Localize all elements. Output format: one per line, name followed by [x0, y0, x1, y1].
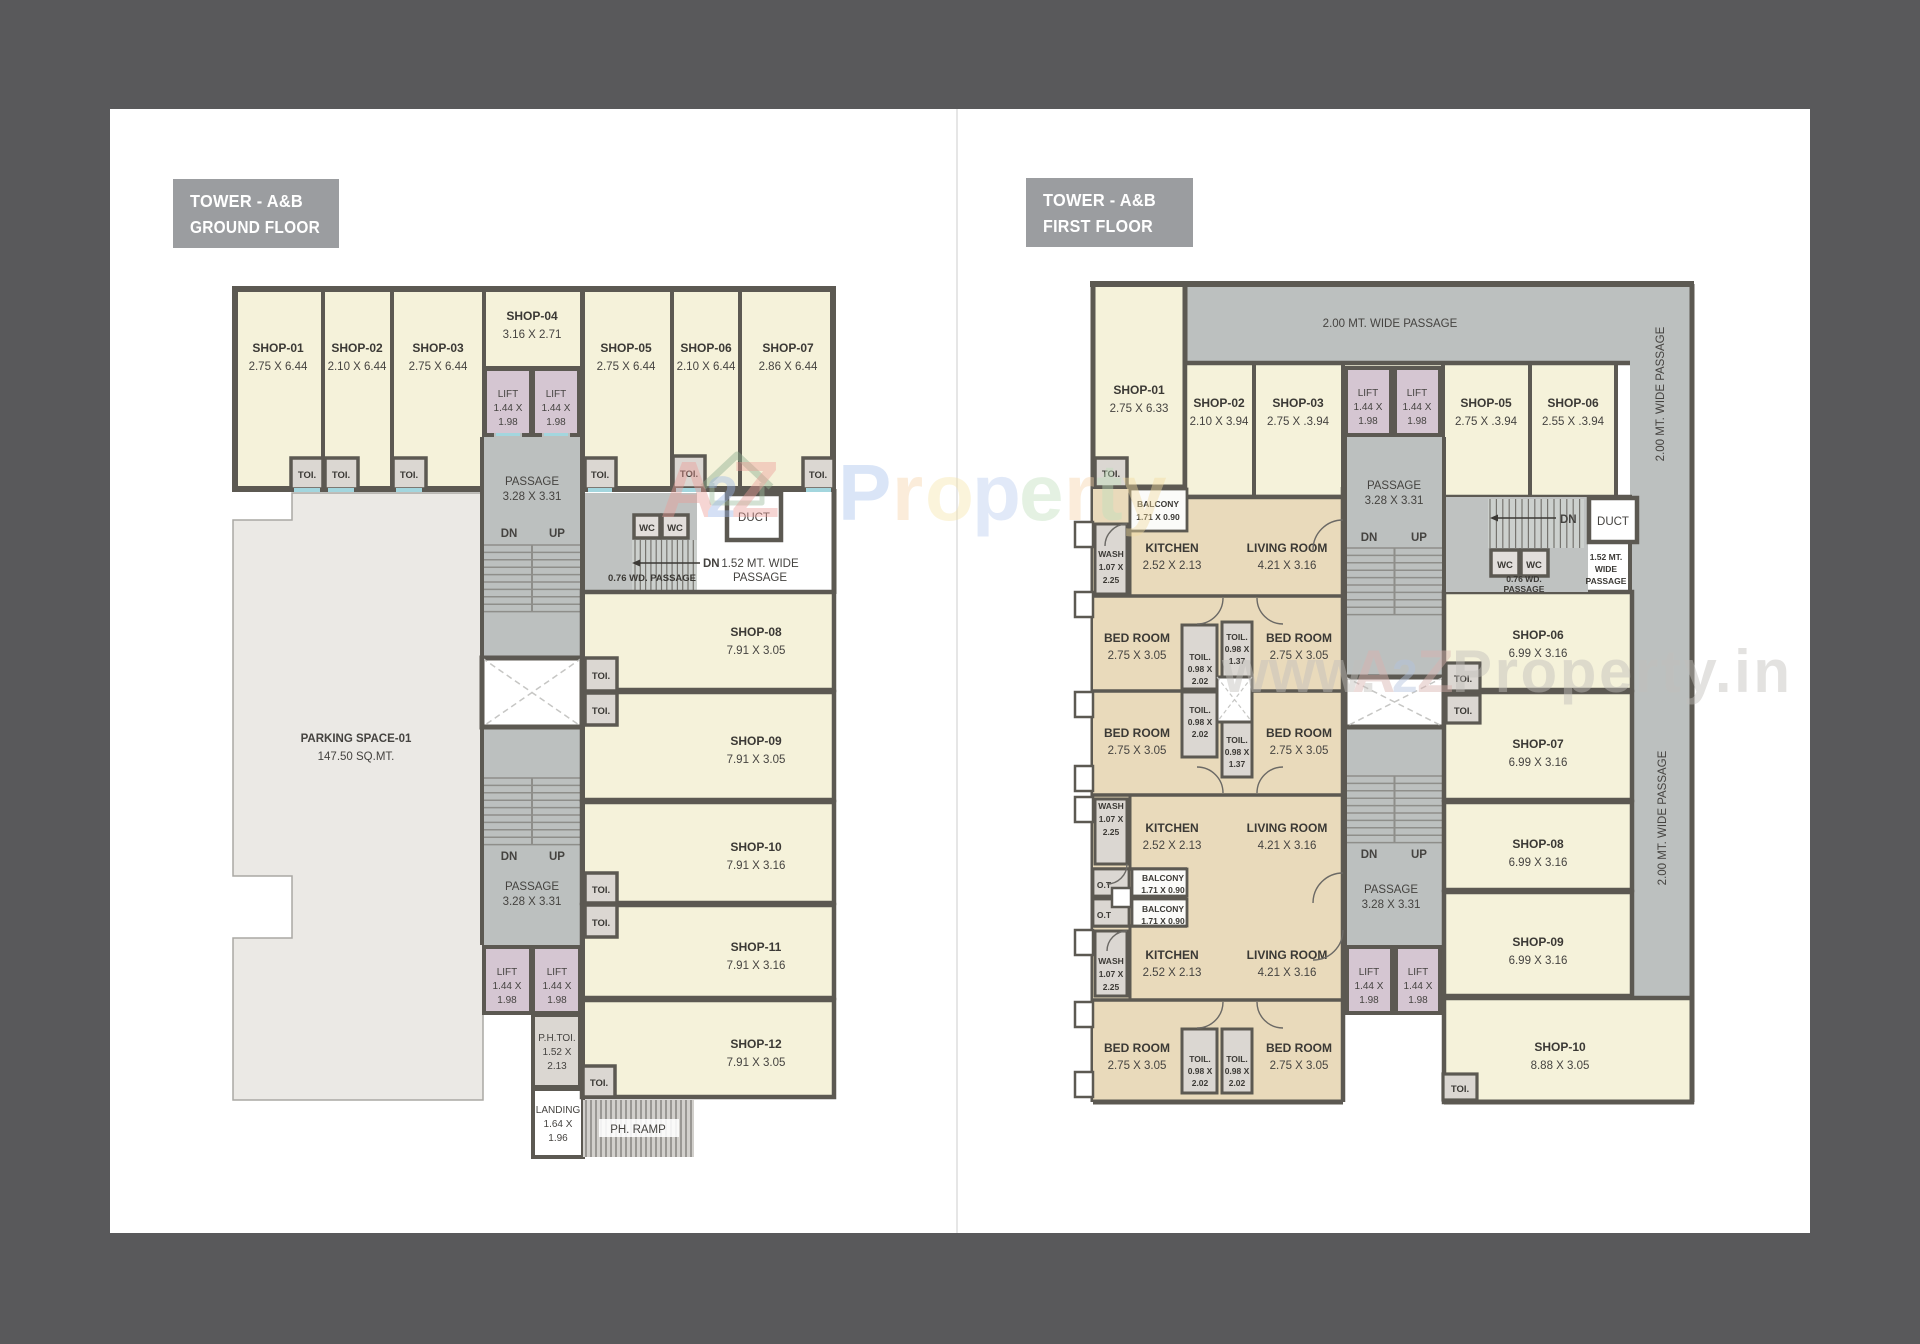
svg-text:2.13: 2.13	[547, 1061, 567, 1072]
svg-text:0.98 X: 0.98 X	[1188, 717, 1213, 727]
svg-text:p: p	[972, 448, 1021, 537]
svg-text:3.28 X 3.31: 3.28 X 3.31	[1365, 495, 1424, 507]
svg-text:LIFT: LIFT	[547, 967, 568, 978]
svg-text:1.98: 1.98	[1408, 995, 1428, 1006]
svg-text:TOI.: TOI.	[1451, 1084, 1469, 1095]
svg-text:8.88 X 3.05: 8.88 X 3.05	[1531, 1060, 1590, 1072]
svg-text:SHOP-07: SHOP-07	[1512, 737, 1564, 751]
svg-text:KITCHEN: KITCHEN	[1145, 541, 1198, 555]
svg-text:2.02: 2.02	[1229, 1078, 1246, 1088]
svg-text:1.44 X: 1.44 X	[543, 981, 572, 992]
svg-text:2.25: 2.25	[1103, 575, 1120, 585]
svg-text:UP: UP	[549, 851, 565, 863]
svg-text:1.44 X: 1.44 X	[1354, 402, 1383, 413]
svg-text:2.25: 2.25	[1103, 982, 1120, 992]
svg-text:PASSAGE: PASSAGE	[1364, 884, 1418, 896]
svg-text:2.02: 2.02	[1192, 676, 1209, 686]
svg-text:2.75 X 3.05: 2.75 X 3.05	[1108, 650, 1167, 662]
svg-text:7.91 X 3.05: 7.91 X 3.05	[727, 1057, 786, 1069]
svg-text:r: r	[892, 448, 923, 537]
svg-text:2.00 MT. WIDE PASSAGE: 2.00 MT. WIDE PASSAGE	[1323, 318, 1458, 330]
svg-text:r: r	[1064, 448, 1095, 537]
svg-text:2.75 X 3.05: 2.75 X 3.05	[1108, 1060, 1167, 1072]
svg-text:P.H.TOI.: P.H.TOI.	[538, 1033, 575, 1044]
svg-text:1.98: 1.98	[546, 417, 566, 428]
svg-text:y: y	[1122, 448, 1167, 537]
svg-text:TOI.: TOI.	[1454, 706, 1472, 717]
svg-text:2.52 X 2.13: 2.52 X 2.13	[1143, 840, 1202, 852]
svg-text:SHOP-10: SHOP-10	[730, 840, 782, 854]
svg-text:DN: DN	[501, 528, 518, 540]
svg-text:TOI.: TOI.	[592, 706, 610, 717]
svg-text:BED ROOM: BED ROOM	[1266, 726, 1332, 740]
svg-text:PASSAGE: PASSAGE	[1367, 480, 1421, 492]
svg-text:TOI.: TOI.	[298, 470, 316, 481]
svg-text:UP: UP	[1411, 849, 1427, 861]
svg-text:KITCHEN: KITCHEN	[1145, 821, 1198, 835]
svg-text:1.44 X: 1.44 X	[542, 403, 571, 414]
svg-text:1.98: 1.98	[1359, 995, 1379, 1006]
svg-text:DN: DN	[1560, 514, 1577, 526]
svg-text:1.71 X 0.90: 1.71 X 0.90	[1141, 916, 1185, 926]
svg-text:1.07 X: 1.07 X	[1099, 969, 1124, 979]
svg-text:7.91 X 3.16: 7.91 X 3.16	[727, 960, 786, 972]
svg-text:t: t	[1096, 448, 1123, 537]
svg-text:2.75 X 6.44: 2.75 X 6.44	[409, 361, 468, 373]
svg-text:BALCONY: BALCONY	[1142, 873, 1184, 883]
svg-text:GROUND FLOOR: GROUND FLOOR	[190, 217, 320, 237]
svg-text:1.52 X: 1.52 X	[543, 1047, 572, 1058]
svg-text:PASSAGE: PASSAGE	[733, 572, 787, 584]
svg-text:BED ROOM: BED ROOM	[1104, 726, 1170, 740]
svg-text:1.37: 1.37	[1229, 759, 1246, 769]
svg-text:O.T: O.T	[1097, 880, 1112, 890]
svg-text:SHOP-02: SHOP-02	[1193, 396, 1245, 410]
svg-text:0.98 X: 0.98 X	[1225, 1066, 1250, 1076]
svg-text:TOI.: TOI.	[400, 470, 418, 481]
svg-text:DN: DN	[703, 558, 720, 570]
svg-text:LIFT: LIFT	[498, 389, 519, 400]
svg-text:WC: WC	[639, 523, 655, 534]
svg-text:BED ROOM: BED ROOM	[1104, 1041, 1170, 1055]
svg-text:0.98 X: 0.98 X	[1188, 1066, 1213, 1076]
svg-text:WASH: WASH	[1098, 956, 1124, 966]
svg-text:SHOP-05: SHOP-05	[600, 341, 652, 355]
svg-text:TOI.: TOI.	[591, 470, 609, 481]
svg-text:2.75 X .3.94: 2.75 X .3.94	[1455, 416, 1518, 428]
svg-text:LIVING ROOM: LIVING ROOM	[1247, 821, 1328, 835]
svg-text:1.96: 1.96	[548, 1133, 568, 1144]
svg-text:SHOP-02: SHOP-02	[331, 341, 383, 355]
svg-text:2.00 MT. WIDE PASSAGE: 2.00 MT. WIDE PASSAGE	[1657, 750, 1669, 885]
svg-text:SHOP-06: SHOP-06	[1547, 396, 1599, 410]
svg-text:TOI.: TOI.	[592, 885, 610, 896]
svg-text:UP: UP	[549, 528, 565, 540]
svg-text:1.44 X: 1.44 X	[493, 981, 522, 992]
svg-text:DN: DN	[501, 851, 518, 863]
svg-text:6.99 X 3.16: 6.99 X 3.16	[1509, 757, 1568, 769]
svg-text:2.52 X 2.13: 2.52 X 2.13	[1143, 560, 1202, 572]
svg-text:TOIL.: TOIL.	[1189, 652, 1211, 662]
svg-text:SHOP-06: SHOP-06	[680, 341, 732, 355]
svg-text:TOIL.: TOIL.	[1189, 1054, 1211, 1064]
svg-text:3.28 X 3.31: 3.28 X 3.31	[1362, 899, 1421, 911]
svg-text:0.76 WD.: 0.76 WD.	[1506, 574, 1541, 584]
svg-text:WASH: WASH	[1098, 801, 1124, 811]
svg-text:LIFT: LIFT	[497, 967, 518, 978]
svg-text:PASSAGE: PASSAGE	[505, 881, 559, 893]
svg-text:TOWER - A&B: TOWER - A&B	[190, 191, 303, 211]
svg-text:WC: WC	[1497, 560, 1513, 571]
svg-text:1.98: 1.98	[547, 995, 567, 1006]
svg-text:2.75 X 6.44: 2.75 X 6.44	[597, 361, 656, 373]
svg-text:2: 2	[1392, 650, 1418, 702]
svg-text:TOI.: TOI.	[590, 1078, 608, 1089]
svg-text:1.98: 1.98	[1358, 416, 1378, 427]
svg-text:2.00 MT. WIDE PASSAGE: 2.00 MT. WIDE PASSAGE	[1655, 326, 1667, 461]
svg-text:SHOP-01: SHOP-01	[252, 341, 304, 355]
svg-text:DN: DN	[1361, 849, 1378, 861]
svg-text:LIFT: LIFT	[1408, 967, 1429, 978]
svg-text:BED ROOM: BED ROOM	[1266, 1041, 1332, 1055]
svg-text:SHOP-05: SHOP-05	[1460, 396, 1512, 410]
svg-text:7.91 X 3.05: 7.91 X 3.05	[727, 645, 786, 657]
svg-text:SHOP-08: SHOP-08	[1512, 837, 1564, 851]
svg-text:0.98 X: 0.98 X	[1188, 664, 1213, 674]
svg-text:SHOP-11: SHOP-11	[731, 940, 782, 954]
svg-text:PASSAGE: PASSAGE	[505, 476, 559, 488]
svg-text:2.75 X .3.94: 2.75 X .3.94	[1267, 416, 1330, 428]
svg-text:3.28 X 3.31: 3.28 X 3.31	[503, 896, 562, 908]
svg-text:TOIL.: TOIL.	[1226, 735, 1248, 745]
svg-text:TOIL.: TOIL.	[1189, 705, 1211, 715]
svg-text:SHOP-03: SHOP-03	[1272, 396, 1324, 410]
svg-text:SHOP-01: SHOP-01	[1113, 383, 1165, 397]
svg-text:PASSAGE: PASSAGE	[1586, 576, 1627, 586]
svg-text:2.10 X 6.44: 2.10 X 6.44	[328, 361, 387, 373]
svg-text:2.75 X 3.05: 2.75 X 3.05	[1270, 1060, 1329, 1072]
svg-text:2.25: 2.25	[1103, 827, 1120, 837]
svg-text:1.44 X: 1.44 X	[494, 403, 523, 414]
svg-text:1.52 MT. WIDE: 1.52 MT. WIDE	[721, 558, 799, 570]
svg-text:TOI.: TOI.	[592, 918, 610, 929]
svg-text:O.T: O.T	[1097, 910, 1112, 920]
svg-text:SHOP-03: SHOP-03	[412, 341, 464, 355]
svg-text:SHOP-07: SHOP-07	[762, 341, 814, 355]
svg-text:LIFT: LIFT	[1407, 388, 1428, 399]
svg-text:0.76 WD. PASSAGE: 0.76 WD. PASSAGE	[608, 573, 696, 584]
svg-text:e: e	[1019, 448, 1064, 537]
svg-text:2.86 X 6.44: 2.86 X 6.44	[759, 361, 818, 373]
svg-text:147.50 SQ.MT.: 147.50 SQ.MT.	[318, 751, 395, 763]
svg-text:PH. RAMP: PH. RAMP	[610, 1124, 666, 1136]
svg-text:2.75 X 6.33: 2.75 X 6.33	[1110, 403, 1169, 415]
svg-text:6.99 X 3.16: 6.99 X 3.16	[1509, 955, 1568, 967]
svg-text:7.91 X 3.05: 7.91 X 3.05	[727, 754, 786, 766]
svg-text:DN: DN	[1361, 532, 1378, 544]
svg-text:4.21 X 3.16: 4.21 X 3.16	[1258, 967, 1317, 979]
svg-text:SHOP-09: SHOP-09	[730, 734, 782, 748]
svg-text:6.99 X 3.16: 6.99 X 3.16	[1509, 857, 1568, 869]
svg-text:1.64 X: 1.64 X	[544, 1119, 573, 1130]
svg-text:LIFT: LIFT	[546, 389, 567, 400]
svg-text:1.07 X: 1.07 X	[1099, 562, 1124, 572]
svg-text:BED ROOM: BED ROOM	[1104, 631, 1170, 645]
svg-text:LIFT: LIFT	[1358, 388, 1379, 399]
svg-text:3.16 X 2.71: 3.16 X 2.71	[503, 329, 562, 341]
svg-text:3.28 X 3.31: 3.28 X 3.31	[503, 491, 562, 503]
svg-text:PASSAGE: PASSAGE	[1504, 584, 1545, 594]
svg-text:1.44 X: 1.44 X	[1403, 402, 1432, 413]
svg-text:2.02: 2.02	[1192, 729, 1209, 739]
svg-text:1.07 X: 1.07 X	[1099, 814, 1124, 824]
svg-text:2.10 X 3.94: 2.10 X 3.94	[1190, 416, 1249, 428]
svg-text:2.75 X 3.05: 2.75 X 3.05	[1270, 745, 1329, 757]
svg-text:TOI.: TOI.	[332, 470, 350, 481]
svg-text:Z: Z	[1417, 638, 1454, 705]
svg-text:LIFT: LIFT	[1359, 967, 1380, 978]
svg-text:KITCHEN: KITCHEN	[1145, 948, 1198, 962]
svg-text:2.10 X 6.44: 2.10 X 6.44	[677, 361, 736, 373]
svg-text:2.02: 2.02	[1192, 1078, 1209, 1088]
svg-text:TOWER - A&B: TOWER - A&B	[1043, 190, 1156, 210]
svg-text:2.75 X 6.44: 2.75 X 6.44	[249, 361, 308, 373]
svg-text:7.91 X 3.16: 7.91 X 3.16	[727, 860, 786, 872]
svg-text:TOI.: TOI.	[809, 470, 827, 481]
svg-text:4.21 X 3.16: 4.21 X 3.16	[1258, 560, 1317, 572]
svg-text:WIDE: WIDE	[1595, 564, 1618, 574]
svg-text:TOIL.: TOIL.	[1226, 1054, 1248, 1064]
svg-text:4.21 X 3.16: 4.21 X 3.16	[1258, 840, 1317, 852]
svg-text:o: o	[925, 448, 974, 537]
svg-text:0.98 X: 0.98 X	[1225, 747, 1250, 757]
svg-text:P: P	[838, 448, 891, 537]
svg-text:WASH: WASH	[1098, 549, 1124, 559]
svg-text:BALCONY: BALCONY	[1142, 904, 1184, 914]
svg-text:UP: UP	[1411, 532, 1427, 544]
svg-text:WC: WC	[1526, 560, 1542, 571]
svg-text:1.98: 1.98	[498, 417, 518, 428]
svg-text:FIRST FLOOR: FIRST FLOOR	[1043, 216, 1153, 236]
svg-text:TOI.: TOI.	[592, 671, 610, 682]
svg-text:SHOP-10: SHOP-10	[1534, 1040, 1586, 1054]
svg-text:1.98: 1.98	[497, 995, 517, 1006]
svg-text:Z: Z	[731, 445, 780, 534]
svg-text:2.75 X 3.05: 2.75 X 3.05	[1108, 745, 1167, 757]
svg-text:1.52 MT.: 1.52 MT.	[1590, 552, 1623, 562]
svg-text:LIVING ROOM: LIVING ROOM	[1247, 541, 1328, 555]
svg-text:2.52 X 2.13: 2.52 X 2.13	[1143, 967, 1202, 979]
svg-text:SHOP-09: SHOP-09	[1512, 935, 1564, 949]
svg-text:1.71 X 0.90: 1.71 X 0.90	[1141, 885, 1185, 895]
svg-text:2.55 X .3.94: 2.55 X .3.94	[1542, 416, 1605, 428]
svg-text:1.44 X: 1.44 X	[1355, 981, 1384, 992]
svg-text:1.44 X: 1.44 X	[1404, 981, 1433, 992]
svg-text:SHOP-12: SHOP-12	[730, 1037, 782, 1051]
svg-text:PARKING SPACE-01: PARKING SPACE-01	[301, 733, 412, 745]
svg-text:A: A	[1352, 638, 1395, 705]
svg-text:SHOP-04: SHOP-04	[506, 309, 558, 323]
svg-text:DUCT: DUCT	[1597, 516, 1629, 528]
svg-text:LANDING: LANDING	[536, 1105, 581, 1116]
svg-text:Property.in: Property.in	[1452, 638, 1790, 705]
svg-text:1.98: 1.98	[1407, 416, 1427, 427]
svg-text:SHOP-08: SHOP-08	[730, 625, 782, 639]
